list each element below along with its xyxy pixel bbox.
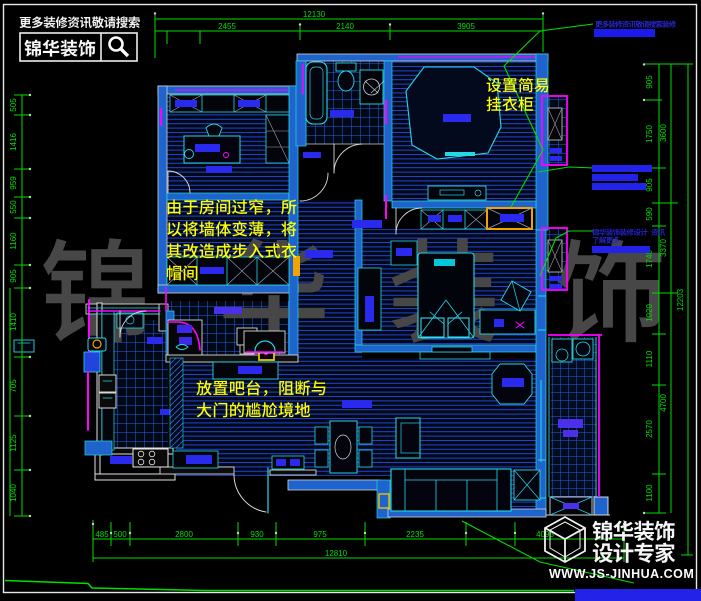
svg-text:975: 975: [313, 530, 327, 539]
svg-text:12130: 12130: [303, 10, 326, 19]
svg-text:4700: 4700: [659, 394, 668, 412]
svg-text:1750: 1750: [645, 125, 654, 143]
svg-text:2235: 2235: [406, 530, 424, 539]
svg-text:905: 905: [645, 178, 654, 192]
svg-text:930: 930: [250, 530, 264, 539]
svg-text:485: 485: [95, 530, 109, 539]
svg-text:1416: 1416: [9, 133, 18, 151]
svg-text:WWW.JS-JINHUA.COM: WWW.JS-JINHUA.COM: [549, 567, 694, 581]
svg-text:590: 590: [645, 207, 654, 221]
svg-text:3600: 3600: [659, 124, 668, 142]
svg-text:505: 505: [9, 98, 18, 112]
svg-text:3370: 3370: [659, 239, 668, 257]
svg-text:705: 705: [9, 379, 18, 393]
svg-text:500: 500: [113, 530, 127, 539]
svg-text:1100: 1100: [645, 484, 654, 502]
svg-text:550: 550: [9, 200, 18, 214]
svg-text:1410: 1410: [9, 313, 18, 331]
svg-text:2140: 2140: [336, 22, 354, 31]
svg-text:1160: 1160: [9, 232, 18, 250]
svg-text:1110: 1110: [645, 350, 654, 367]
svg-text:1020: 1020: [645, 304, 654, 322]
svg-text:959: 959: [9, 176, 18, 190]
svg-text:905: 905: [9, 269, 18, 283]
svg-text:12810: 12810: [325, 549, 348, 558]
svg-text:12203: 12203: [676, 288, 685, 311]
svg-text:2800: 2800: [175, 530, 193, 539]
svg-text:2570: 2570: [645, 420, 654, 438]
svg-text:905: 905: [645, 75, 654, 89]
svg-text:3905: 3905: [457, 22, 475, 31]
svg-text:2455: 2455: [218, 22, 236, 31]
svg-text:1040: 1040: [9, 484, 18, 502]
svg-text:1125: 1125: [9, 434, 18, 452]
